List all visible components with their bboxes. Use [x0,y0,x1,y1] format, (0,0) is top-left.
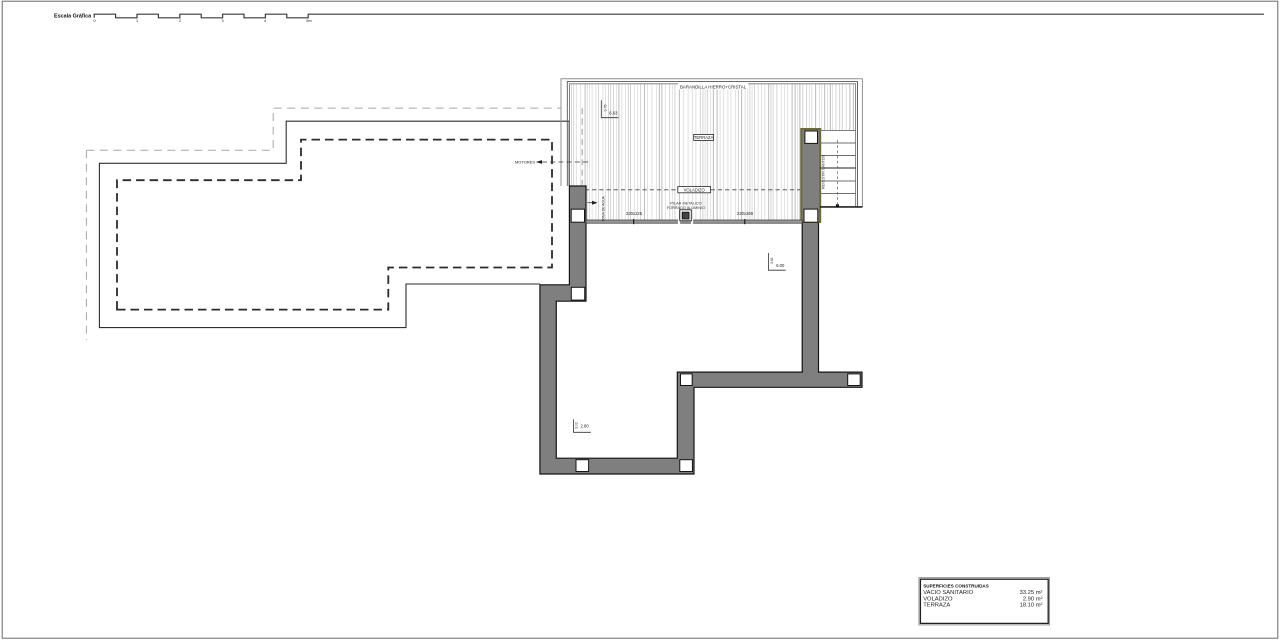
svg-text:3.02: 3.02 [575,422,579,429]
svg-text:VACIO SANITARIO: VACIO SANITARIO [923,590,974,596]
svg-text:2.80: 2.80 [581,424,590,429]
svg-text:0: 0 [93,19,95,23]
svg-text:VOLADIZO: VOLADIZO [684,188,706,193]
svg-text:FORRADO ALUMINIO: FORRADO ALUMINIO [667,206,705,210]
svg-text:2: 2 [179,19,181,23]
svg-text:TOMA DE AGUA: TOMA DE AGUA [602,195,606,221]
svg-text:220x269: 220x269 [737,211,754,216]
svg-text:6.63: 6.63 [609,110,618,115]
svg-text:Escala Gráfica: Escala Gráfica [54,14,92,20]
svg-text:3.61: 3.61 [770,257,774,264]
svg-text:REVESTIR CANTOS: REVESTIR CANTOS [822,155,826,189]
svg-text:1: 1 [136,19,138,23]
svg-text:MOTORES: MOTORES [515,160,535,165]
svg-text:4: 4 [264,19,266,23]
svg-text:3: 3 [221,19,223,23]
svg-text:18.10 m²: 18.10 m² [1020,602,1043,608]
svg-text:33.25 m²: 33.25 m² [1020,590,1043,596]
svg-text:TERRAZA: TERRAZA [923,602,950,608]
svg-text:220x225: 220x225 [626,211,643,216]
svg-text:TERRAZA: TERRAZA [694,135,714,140]
svg-text:3.75: 3.75 [604,105,608,112]
svg-text:BARANDILLA HIERRO+CRISTAL: BARANDILLA HIERRO+CRISTAL [680,85,747,90]
svg-text:SUPERFICIES CONSTRUIDAS: SUPERFICIES CONSTRUIDAS [923,583,989,588]
svg-text:5m: 5m [306,19,311,23]
svg-text:6.00: 6.00 [776,263,785,268]
